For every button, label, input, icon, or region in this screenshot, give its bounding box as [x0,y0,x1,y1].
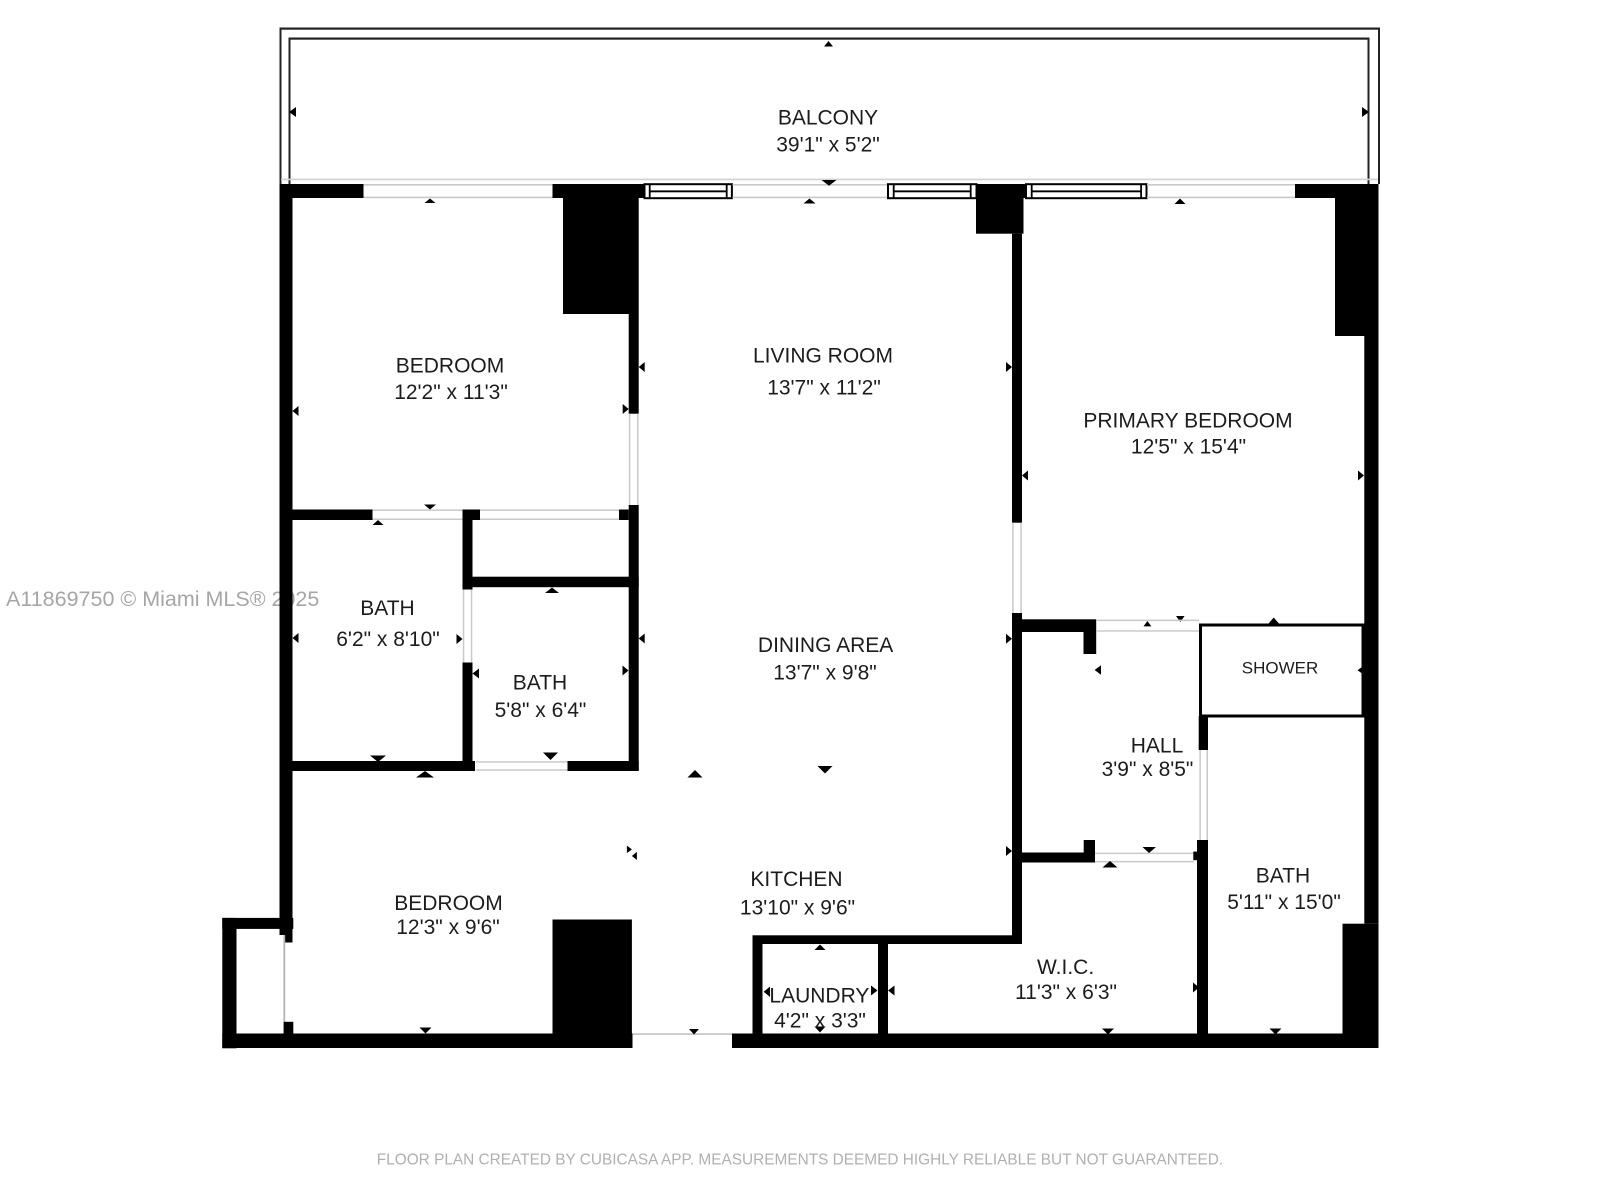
svg-text:KITCHEN: KITCHEN [750,868,842,891]
svg-text:12'5" x 15'4": 12'5" x 15'4" [1131,436,1246,459]
svg-text:DINING AREA: DINING AREA [758,634,893,657]
svg-text:BATH: BATH [1256,865,1310,888]
svg-text:12'3" x 9'6": 12'3" x 9'6" [396,916,500,939]
svg-text:12'2" x 11'3": 12'2" x 11'3" [394,381,508,404]
svg-text:BEDROOM: BEDROOM [394,892,503,915]
svg-text:13'7" x 11'2": 13'7" x 11'2" [767,377,881,400]
svg-text:PRIMARY BEDROOM: PRIMARY BEDROOM [1083,410,1292,433]
svg-text:SHOWER: SHOWER [1242,659,1319,678]
svg-text:BALCONY: BALCONY [778,107,878,130]
svg-text:13'10" x 9'6": 13'10" x 9'6" [740,897,855,920]
svg-text:39'1" x 5'2": 39'1" x 5'2" [776,134,880,157]
svg-text:11'3" x 6'3": 11'3" x 6'3" [1015,981,1117,1004]
svg-text:13'7" x 9'8": 13'7" x 9'8" [773,662,877,685]
svg-text:BATH: BATH [360,597,414,620]
svg-text:W.I.C.: W.I.C. [1037,956,1094,979]
svg-text:4'2" x 3'3": 4'2" x 3'3" [774,1010,866,1033]
svg-text:FLOOR PLAN CREATED BY CUBICASA: FLOOR PLAN CREATED BY CUBICASA APP. MEAS… [377,1152,1223,1169]
svg-text:A11869750 © Miami MLS® 2025: A11869750 © Miami MLS® 2025 [6,587,319,611]
svg-text:BATH: BATH [513,672,567,695]
svg-text:HALL: HALL [1131,735,1184,758]
svg-text:LIVING ROOM: LIVING ROOM [753,345,893,368]
svg-text:3'9" x 8'5": 3'9" x 8'5" [1102,758,1194,781]
svg-text:6'2" x 8'10": 6'2" x 8'10" [336,628,440,651]
svg-text:LAUNDRY: LAUNDRY [769,985,869,1008]
svg-text:BEDROOM: BEDROOM [396,355,505,378]
svg-text:5'8" x 6'4": 5'8" x 6'4" [495,699,587,722]
svg-text:5'11" x 15'0": 5'11" x 15'0" [1227,891,1341,914]
